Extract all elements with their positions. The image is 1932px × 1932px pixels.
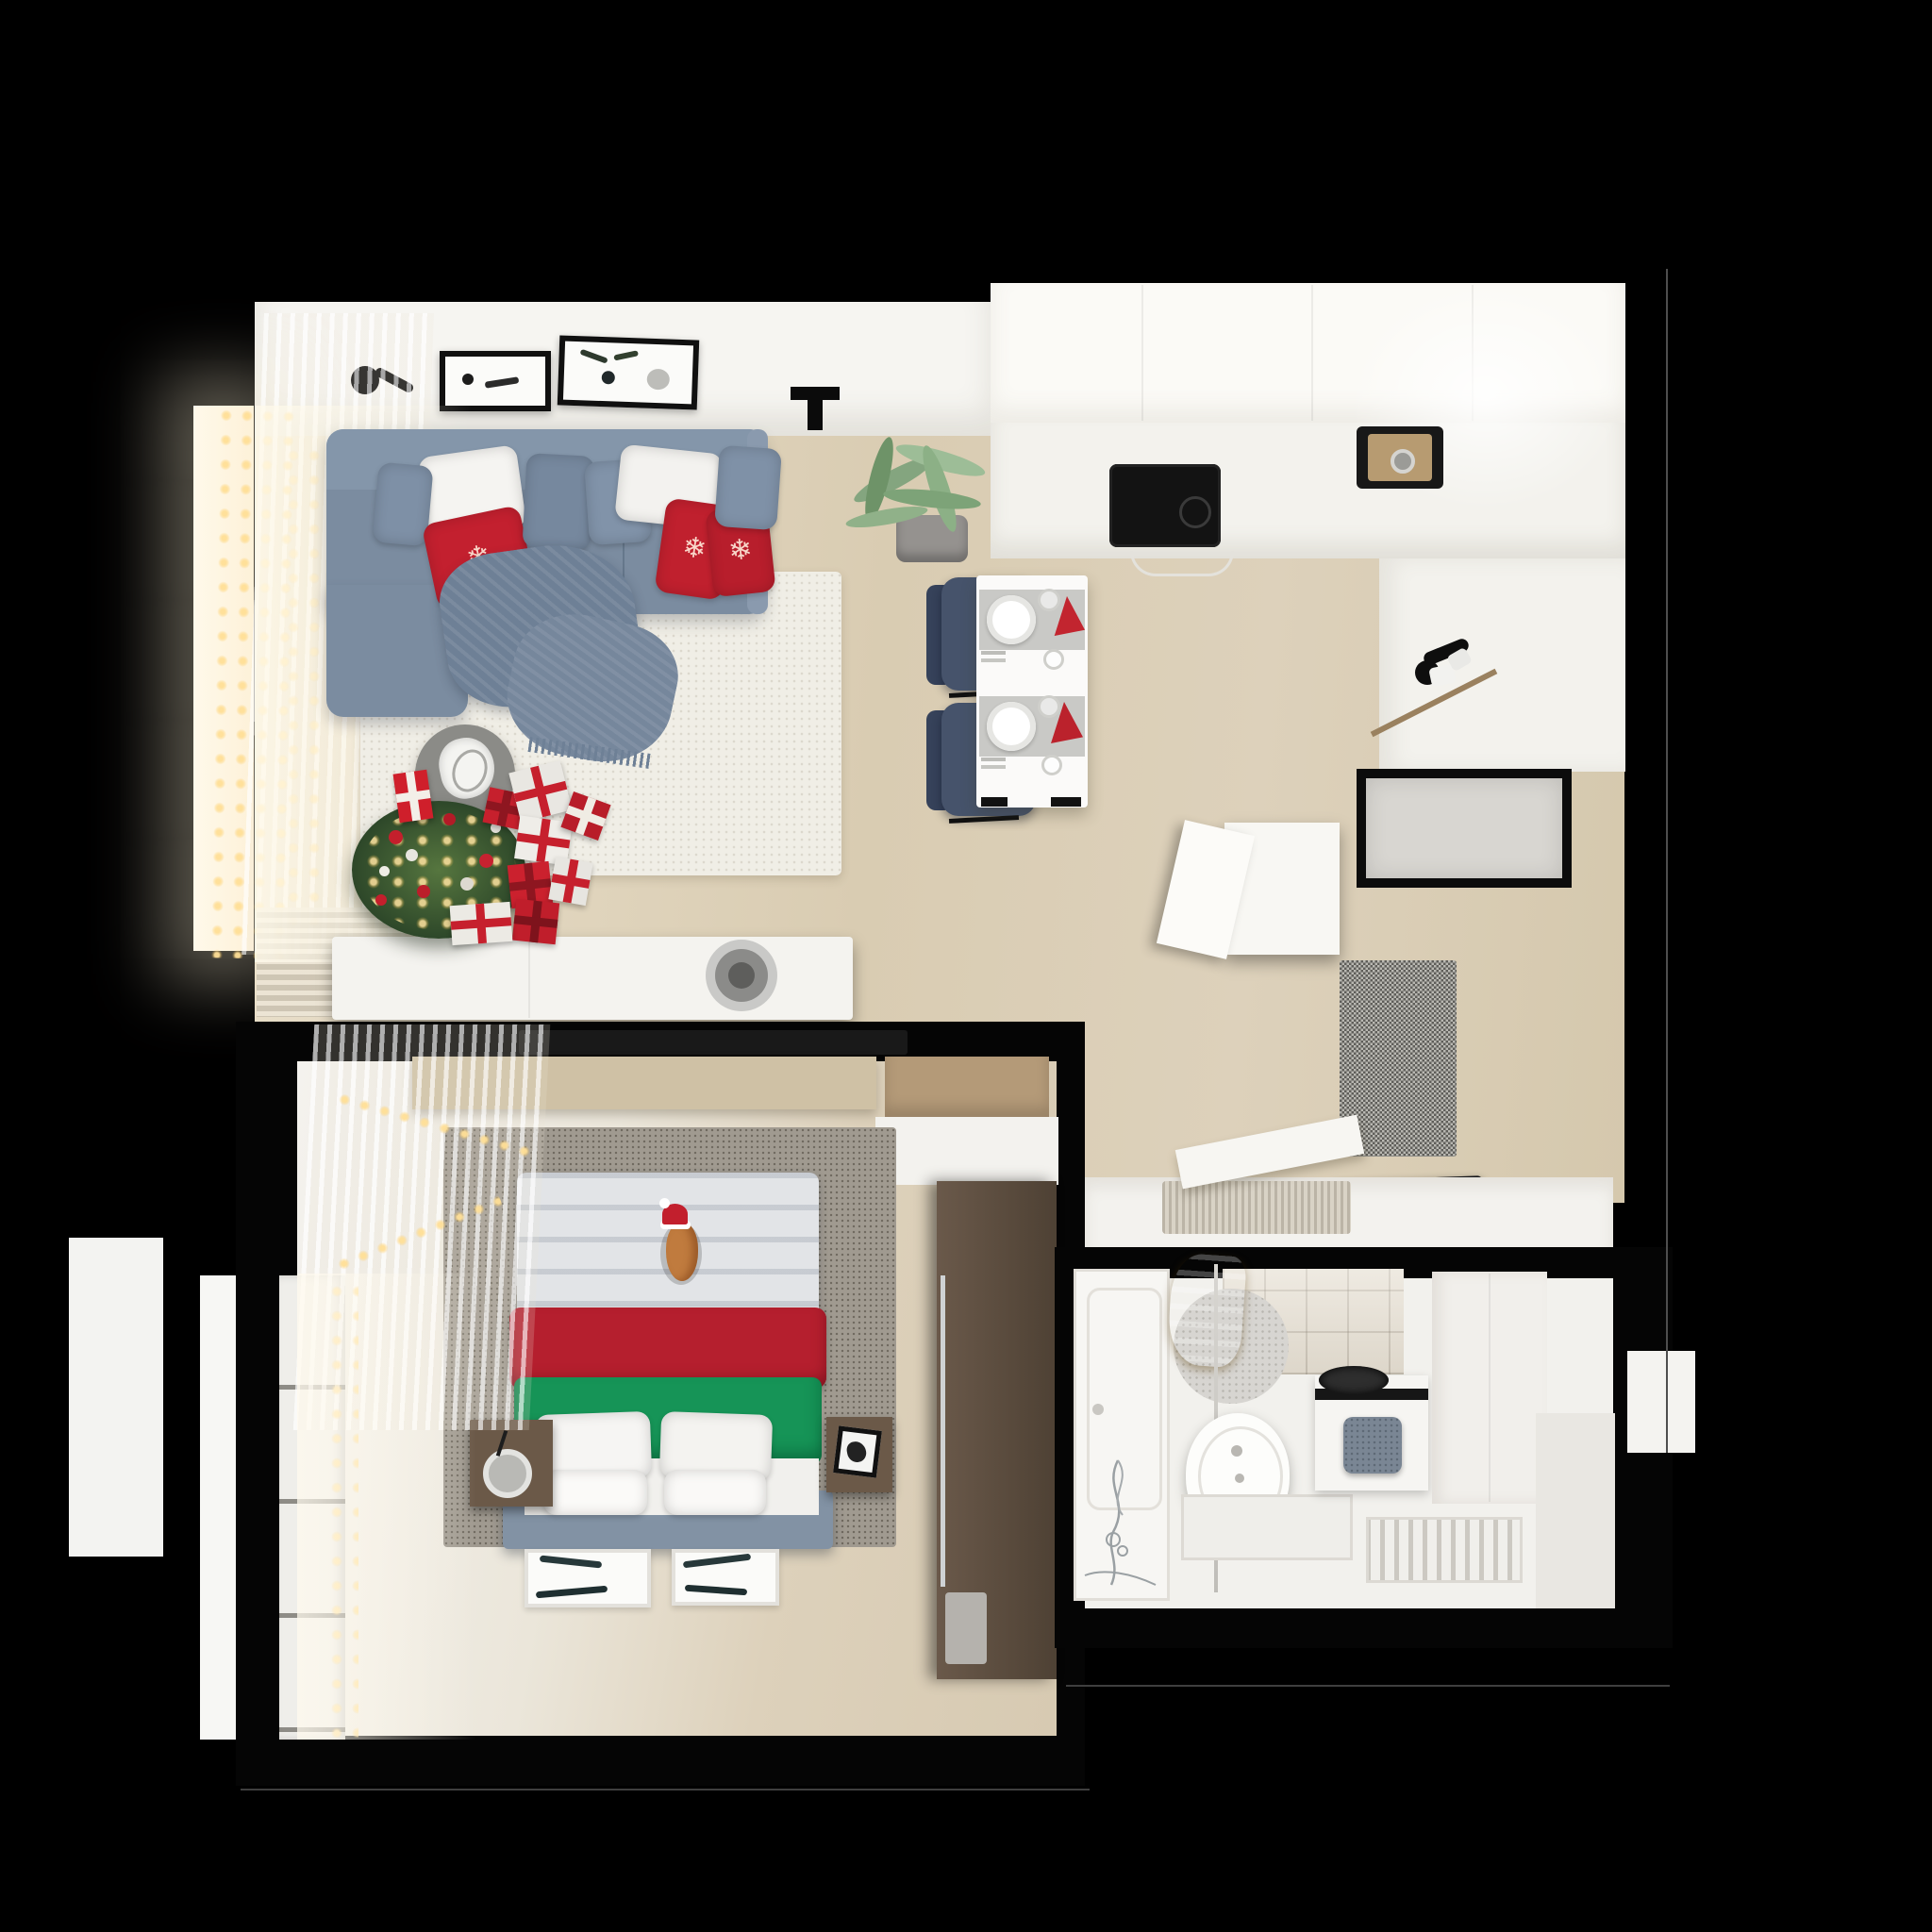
tree-ornament-red bbox=[443, 813, 456, 825]
cabinet-seam bbox=[1489, 1274, 1491, 1502]
leaf-stroke bbox=[536, 1586, 608, 1599]
wardrobe-foot-mat bbox=[945, 1592, 987, 1664]
sink-drain bbox=[1391, 449, 1415, 474]
wall-art-frame-2 bbox=[558, 335, 699, 409]
exterior-white-panel bbox=[69, 1238, 163, 1557]
table-leg bbox=[981, 797, 1008, 807]
art-glyph bbox=[579, 349, 608, 364]
bedroom-cabinet-white bbox=[875, 1117, 1058, 1185]
gift-box-white bbox=[450, 902, 513, 945]
bed-pillow-small bbox=[543, 1470, 647, 1515]
pillow-blue bbox=[522, 453, 594, 551]
toilet-button bbox=[1231, 1445, 1242, 1457]
gift-box-red bbox=[393, 770, 434, 824]
cutlery bbox=[981, 658, 1006, 662]
floor-frame bbox=[672, 1549, 779, 1606]
bedroom-desk bbox=[885, 1057, 1049, 1117]
pillow-blue bbox=[714, 445, 782, 530]
wardrobe-handle bbox=[941, 1275, 945, 1587]
cabinet-seam bbox=[1311, 285, 1313, 421]
alarm-clock bbox=[483, 1449, 532, 1498]
tree-ornament-white bbox=[460, 877, 474, 891]
art-glyph bbox=[602, 371, 615, 384]
speaker-center bbox=[728, 962, 755, 989]
apartment-floorplan bbox=[0, 0, 1932, 1932]
entry-door bbox=[1357, 769, 1572, 888]
bathtub-drain bbox=[1092, 1404, 1104, 1415]
tree-ornament-red bbox=[375, 894, 387, 906]
sideboard-seam bbox=[528, 939, 530, 1018]
art-glyph bbox=[485, 376, 520, 389]
flower-decal bbox=[1066, 1453, 1170, 1594]
glass bbox=[1041, 755, 1062, 775]
cutlery bbox=[981, 758, 1006, 761]
cooktop-drawer-handle bbox=[1130, 551, 1234, 576]
art-glyph bbox=[462, 374, 474, 385]
slatted-drain-floor bbox=[1366, 1517, 1523, 1583]
cat-santa-hat-pom bbox=[659, 1198, 670, 1208]
shower-tray bbox=[1181, 1494, 1353, 1560]
dinner-plate bbox=[987, 702, 1036, 751]
cutlery bbox=[981, 651, 1006, 655]
glass bbox=[1043, 649, 1064, 670]
plant-pot bbox=[896, 515, 968, 562]
bedroom-tv bbox=[519, 1030, 908, 1055]
wall-edge-line-bath bbox=[1066, 1685, 1670, 1687]
gray-towel bbox=[1343, 1417, 1402, 1474]
tree-ornament-red bbox=[389, 830, 403, 844]
cabinet-seam bbox=[1141, 285, 1143, 421]
glass bbox=[1038, 589, 1060, 611]
gift-box-red bbox=[512, 899, 559, 945]
tree-ornament-white bbox=[406, 849, 418, 861]
black-basin bbox=[1319, 1366, 1389, 1394]
gift-box-white bbox=[548, 857, 592, 906]
art-glyph bbox=[613, 350, 639, 360]
cat-body bbox=[666, 1223, 698, 1281]
tree-ornament-red bbox=[417, 885, 430, 898]
wall-edge-line-bedroom bbox=[241, 1789, 1090, 1790]
table-leg bbox=[1051, 797, 1081, 807]
bedroom-window-glow bbox=[297, 1274, 476, 1740]
gold-towels bbox=[1166, 1252, 1247, 1368]
tree-ornament-red bbox=[479, 854, 493, 868]
exterior-niche-panel bbox=[1627, 1351, 1695, 1453]
wall-art-frame-1 bbox=[440, 351, 551, 411]
floor-frame bbox=[525, 1549, 651, 1607]
leaf-stroke bbox=[683, 1554, 751, 1569]
bathroom-niche-block bbox=[1536, 1413, 1615, 1608]
bed-pillow-small bbox=[664, 1470, 766, 1515]
toilet-button bbox=[1235, 1474, 1244, 1483]
bench-mat bbox=[1162, 1181, 1351, 1234]
dinner-plate bbox=[987, 595, 1036, 644]
leaf-stroke bbox=[540, 1556, 602, 1569]
glass bbox=[1038, 695, 1060, 718]
leaf-stroke bbox=[685, 1585, 747, 1596]
wall-edge-line-right bbox=[1666, 269, 1668, 1453]
ceiling-spot-stem bbox=[808, 387, 823, 430]
tree-ornament-white bbox=[379, 866, 390, 876]
cutlery bbox=[981, 765, 1006, 769]
cooktop-dial bbox=[1179, 496, 1211, 528]
art-glyph bbox=[646, 369, 670, 391]
